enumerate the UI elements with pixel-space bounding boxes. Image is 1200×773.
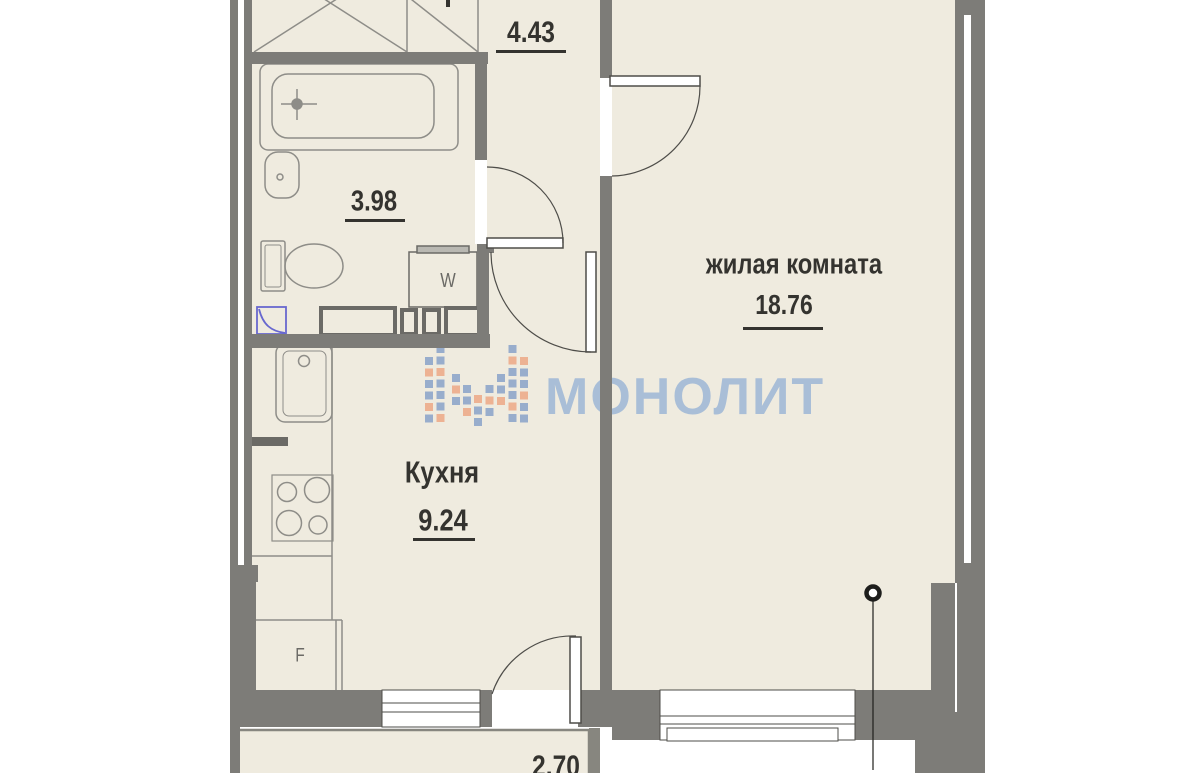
logo-square <box>463 385 471 393</box>
logo-square <box>509 403 517 411</box>
hallway-area-underline <box>496 50 566 53</box>
logo-square <box>437 403 445 411</box>
watermark-brand-text: МОНОЛИТ <box>545 368 825 426</box>
logo-square <box>509 414 517 422</box>
wall-center-top <box>600 0 612 78</box>
logo-square <box>463 397 471 405</box>
bathroom-door-opening <box>475 160 487 244</box>
kitchen-window <box>382 690 480 727</box>
wall-bathroom-right <box>475 52 487 163</box>
logo-square <box>425 369 433 377</box>
cut-text-fragment <box>446 0 450 7</box>
logo-square <box>509 391 517 399</box>
logo-square <box>452 386 460 394</box>
living-room-area-label: 18.76 <box>755 291 812 319</box>
logo-square <box>520 369 528 377</box>
logo-square <box>520 380 528 388</box>
logo-square <box>425 380 433 388</box>
logo-square <box>452 397 460 405</box>
logo-square <box>437 414 445 422</box>
entrance-door-opening <box>600 78 612 176</box>
logo-square <box>437 391 445 399</box>
floor-plan: МОНОЛИТ <box>0 0 1200 773</box>
washing-machine-label: W <box>440 271 455 291</box>
kitchen-area-underline <box>413 538 475 541</box>
logo-square <box>463 408 471 416</box>
wall-closet-bottom <box>252 52 488 64</box>
logo-square <box>452 374 460 382</box>
logo-square <box>425 415 433 423</box>
kitchen-area-label: 9.24 <box>418 505 467 536</box>
logo-square <box>425 357 433 365</box>
logo-square <box>520 403 528 411</box>
logo-square <box>474 395 482 403</box>
balcony-door-opening <box>492 690 578 727</box>
balcony-area-label: 2.70 <box>532 752 580 773</box>
logo-square <box>509 345 517 353</box>
logo-square <box>497 386 505 394</box>
logo-square <box>497 397 505 405</box>
bathroom-area-underline <box>345 219 405 222</box>
logo-square <box>425 392 433 400</box>
bathroom-area-label: 3.98 <box>351 188 397 217</box>
logo-square <box>486 397 494 405</box>
logo-square <box>474 407 482 415</box>
living-room-area-underline <box>743 327 823 330</box>
kitchen-name-label: Кухня <box>405 457 479 488</box>
logo-square <box>437 357 445 365</box>
logo-square <box>497 374 505 382</box>
fridge-label: F <box>295 647 305 666</box>
logo-square <box>425 403 433 411</box>
wall-pilaster <box>931 583 955 712</box>
logo-square <box>486 385 494 393</box>
logo-square <box>486 408 494 416</box>
logo-square <box>437 368 445 376</box>
logo-square <box>509 380 517 388</box>
logo-square <box>509 368 517 376</box>
logo-square <box>520 392 528 400</box>
logo-square <box>509 357 517 365</box>
logo-square <box>520 415 528 423</box>
hallway-area-label: 4.43 <box>507 18 555 48</box>
wall-center <box>600 176 612 690</box>
living-room-window <box>660 690 855 741</box>
bathtub-faucet-icon <box>292 99 302 109</box>
logo-square <box>437 380 445 388</box>
vent-boxes <box>321 308 480 335</box>
logo-square <box>520 357 528 365</box>
floor-plan-drawing: МОНОЛИТ <box>0 0 1200 773</box>
logo-square <box>474 418 482 426</box>
wall-bathroom-bottom <box>252 334 490 348</box>
living-room-name-label: жилая комната <box>706 251 882 280</box>
